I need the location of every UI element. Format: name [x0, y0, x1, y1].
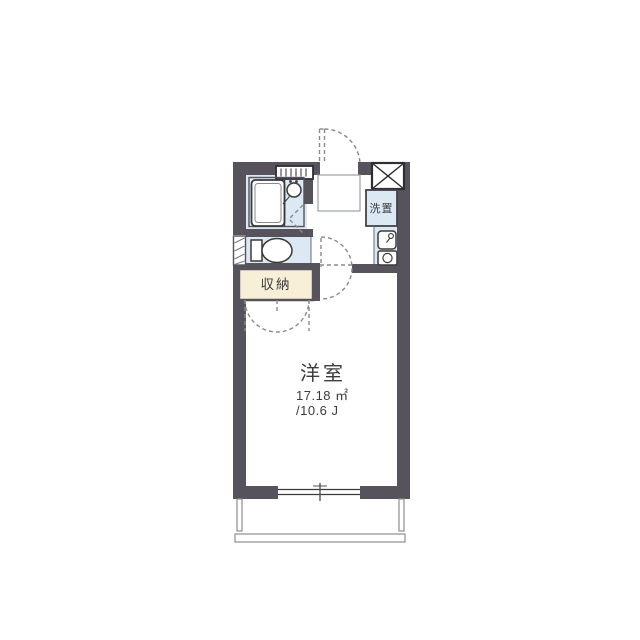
- main-room-label: 洋室 17.18 ㎡ /10.6 J: [296, 362, 349, 418]
- entrance-door-arc-icon: [320, 129, 361, 165]
- room-area: 17.18 ㎡: [296, 388, 349, 403]
- meter-box-icon: [372, 163, 404, 189]
- floor-plan-svg: 収納 洗置 洋室 17.18 ㎡ /10.6 J: [0, 0, 640, 640]
- kitchen-sink-icon: [378, 231, 396, 249]
- closet-doors-arc-icon: [245, 300, 309, 332]
- floorplan-page: 収納 洗置 洋室 17.18 ㎡ /10.6 J: [0, 0, 640, 640]
- room-tatami: /10.6 J: [296, 403, 339, 418]
- sliding-window-icon: [278, 483, 360, 501]
- room-door-arc-icon: [320, 237, 352, 299]
- closet-label: 収納: [261, 277, 292, 292]
- balcony-rail-icon: [235, 534, 405, 542]
- stove-burner-icon: [378, 251, 397, 265]
- room-name: 洋室: [300, 362, 346, 385]
- balcony: [235, 499, 405, 542]
- hatched-window-icon: [234, 236, 246, 265]
- laundry-label: 洗置: [370, 202, 394, 215]
- entrance-step: [318, 175, 360, 211]
- toilet-icon: [251, 239, 292, 263]
- bathtub-icon: [252, 178, 285, 226]
